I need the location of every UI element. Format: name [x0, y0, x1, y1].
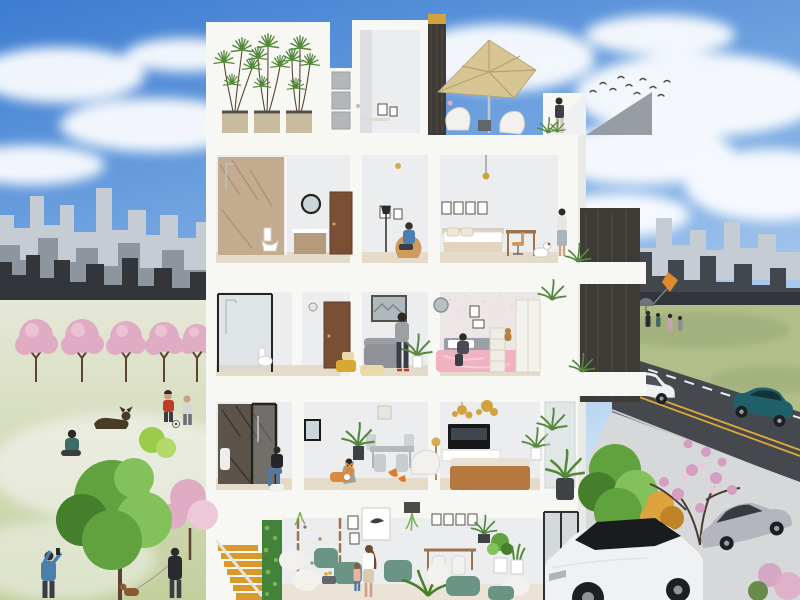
planter-box — [254, 112, 280, 133]
head — [398, 313, 407, 322]
figure — [668, 318, 673, 331]
child-gray-shirt — [182, 403, 192, 414]
floor — [304, 478, 428, 490]
shelf-unit — [490, 328, 505, 372]
small-dog-body — [124, 588, 139, 596]
chair-front — [396, 454, 408, 472]
head — [405, 222, 413, 230]
legs — [61, 450, 81, 456]
low-table — [322, 576, 336, 584]
architectural-cutaway-scene — [0, 0, 800, 600]
legs — [455, 354, 463, 366]
head — [656, 313, 660, 317]
column-light — [428, 14, 446, 24]
bird-art-frame — [362, 508, 390, 540]
pendant-light — [483, 173, 490, 180]
roof-room-shelf — [362, 118, 390, 121]
figure — [678, 320, 683, 331]
shelf-item — [318, 537, 321, 540]
bean-chair — [279, 549, 305, 571]
pillow — [461, 228, 473, 236]
dog-chest — [344, 474, 350, 480]
dog-head — [122, 412, 131, 421]
child-head — [354, 563, 360, 569]
office-chair-back — [521, 232, 524, 244]
vent-panel — [332, 92, 350, 109]
canopy — [38, 334, 58, 354]
torso — [271, 454, 283, 468]
balcony-slab — [572, 262, 646, 284]
sofa-caramel — [450, 466, 530, 490]
canopy — [180, 338, 196, 354]
floor-lamp-shade — [432, 438, 441, 447]
ball-patch — [175, 423, 177, 425]
pendant-orb — [452, 411, 458, 417]
torso — [65, 438, 79, 452]
vent-panels — [332, 72, 350, 129]
vanity-counter — [292, 229, 328, 233]
toilet-bowl — [258, 356, 272, 366]
foliage — [487, 543, 499, 555]
head — [459, 333, 467, 341]
head — [668, 314, 672, 318]
torso — [555, 105, 564, 118]
canopy-light — [155, 325, 167, 337]
ottoman-yellow — [336, 360, 356, 372]
canopy — [145, 337, 163, 355]
pendant-orb — [476, 409, 482, 415]
pot — [494, 558, 507, 573]
plant-pot — [413, 356, 422, 368]
blanket — [444, 242, 502, 252]
head — [274, 447, 281, 454]
toilet-tank — [264, 228, 271, 241]
frame — [362, 508, 390, 540]
head — [171, 548, 179, 556]
ottoman-cream — [360, 365, 384, 375]
sage-armchair — [446, 576, 480, 596]
plant-pot — [531, 448, 541, 460]
thighs — [268, 468, 282, 474]
vanity-cabinet — [294, 233, 326, 254]
bush — [156, 438, 176, 458]
pendant-orb — [457, 405, 467, 415]
canopy — [61, 335, 81, 355]
canopy-light — [71, 323, 85, 337]
canopy-light — [116, 325, 128, 337]
box — [342, 352, 354, 360]
towel — [220, 448, 230, 470]
door-knob — [333, 223, 336, 226]
phone — [56, 548, 60, 555]
head — [68, 430, 76, 438]
pendant-orb — [466, 412, 473, 419]
fruit — [328, 571, 332, 575]
coffee-table — [478, 120, 491, 131]
bed — [442, 228, 504, 252]
torso — [457, 341, 469, 354]
figure — [656, 317, 661, 327]
stool — [270, 484, 284, 492]
canopy — [82, 510, 142, 570]
torso — [403, 230, 415, 244]
head — [646, 311, 650, 315]
pot — [556, 478, 574, 500]
sage-armchair — [314, 548, 338, 568]
bean-chair — [292, 569, 320, 591]
sage-armchair — [488, 586, 514, 600]
fruit — [324, 572, 328, 576]
tv-screen-image — [451, 428, 487, 440]
planter-box — [222, 112, 248, 133]
sage-sofa — [384, 560, 412, 582]
child-head — [183, 395, 190, 402]
floor-3 — [216, 292, 540, 376]
pillow — [447, 228, 459, 236]
bed-pink — [436, 350, 522, 372]
wall-sconce — [309, 303, 317, 311]
scene-canvas — [0, 0, 800, 600]
wall-art — [378, 406, 391, 419]
canopy-light — [25, 323, 39, 337]
sofa-gray — [364, 344, 400, 368]
skirt — [557, 230, 567, 246]
ceiling-light — [395, 163, 401, 169]
balcony-slab — [572, 372, 646, 396]
planter-stand — [478, 534, 490, 543]
dog-ear — [548, 243, 551, 246]
legs — [399, 244, 413, 250]
flower-pot — [448, 101, 453, 106]
skirt — [363, 569, 374, 583]
floor-4 — [216, 155, 567, 263]
canopy — [188, 500, 218, 530]
canopy — [15, 335, 35, 355]
roof-room-shadow — [360, 30, 372, 133]
small-dog-head — [120, 584, 127, 591]
canopy-light — [189, 327, 199, 337]
pot — [511, 560, 523, 574]
hub — [674, 586, 683, 595]
door-knob — [328, 335, 331, 338]
desk-chair — [452, 556, 465, 575]
head — [556, 98, 563, 105]
coat — [168, 556, 182, 580]
floor-2 — [216, 400, 575, 492]
canopy — [114, 458, 154, 498]
child-body — [354, 569, 361, 581]
teddy-bear — [505, 328, 512, 341]
torso — [395, 322, 409, 342]
vent-panel — [332, 72, 350, 89]
chair-front — [374, 454, 386, 472]
torso — [41, 561, 56, 581]
plant-pot — [353, 446, 364, 460]
head — [559, 209, 566, 216]
round-mirror — [302, 195, 320, 213]
vent-panel — [332, 112, 350, 129]
shelf-item — [310, 561, 313, 564]
table-top — [370, 446, 414, 452]
canopy — [106, 337, 124, 355]
child-red-shirt — [163, 400, 174, 412]
vase-flower — [356, 104, 360, 108]
black-frame-mirror — [305, 420, 320, 440]
cloud — [585, 15, 735, 55]
teddy-body — [505, 333, 512, 341]
bean-chair — [427, 562, 449, 586]
torso — [557, 216, 567, 230]
canopy — [84, 334, 104, 354]
pendant-orb — [490, 408, 498, 416]
torso — [363, 553, 374, 569]
building-section — [206, 14, 652, 600]
canopy — [128, 336, 146, 354]
desk-top — [506, 230, 536, 234]
round-wall-mirror — [434, 298, 448, 312]
dark-frame — [404, 502, 420, 513]
planter-box — [286, 112, 312, 133]
head — [678, 316, 682, 320]
shelf-item — [303, 525, 306, 528]
figure — [646, 315, 651, 327]
foliage — [501, 543, 513, 555]
